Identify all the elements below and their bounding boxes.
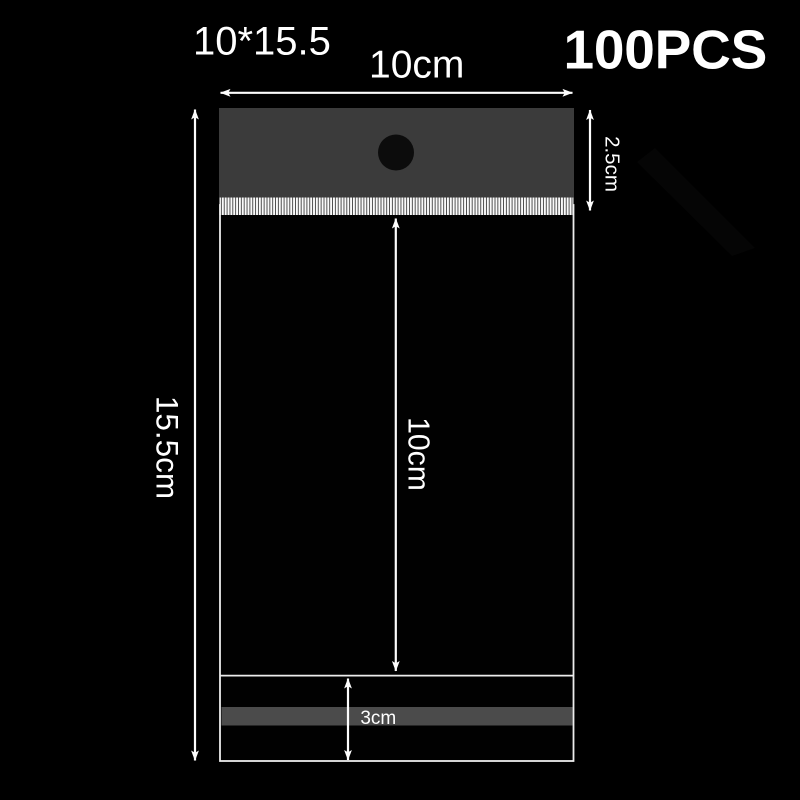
svg-text:100PCS: 100PCS bbox=[564, 18, 768, 80]
svg-text:2.5cm: 2.5cm bbox=[601, 136, 624, 192]
svg-text:3cm: 3cm bbox=[360, 708, 396, 729]
svg-text:10cm: 10cm bbox=[369, 44, 464, 87]
svg-text:10*15.5: 10*15.5 bbox=[193, 20, 331, 64]
svg-text:15.5cm: 15.5cm bbox=[150, 396, 186, 499]
svg-text:10cm: 10cm bbox=[402, 417, 435, 491]
